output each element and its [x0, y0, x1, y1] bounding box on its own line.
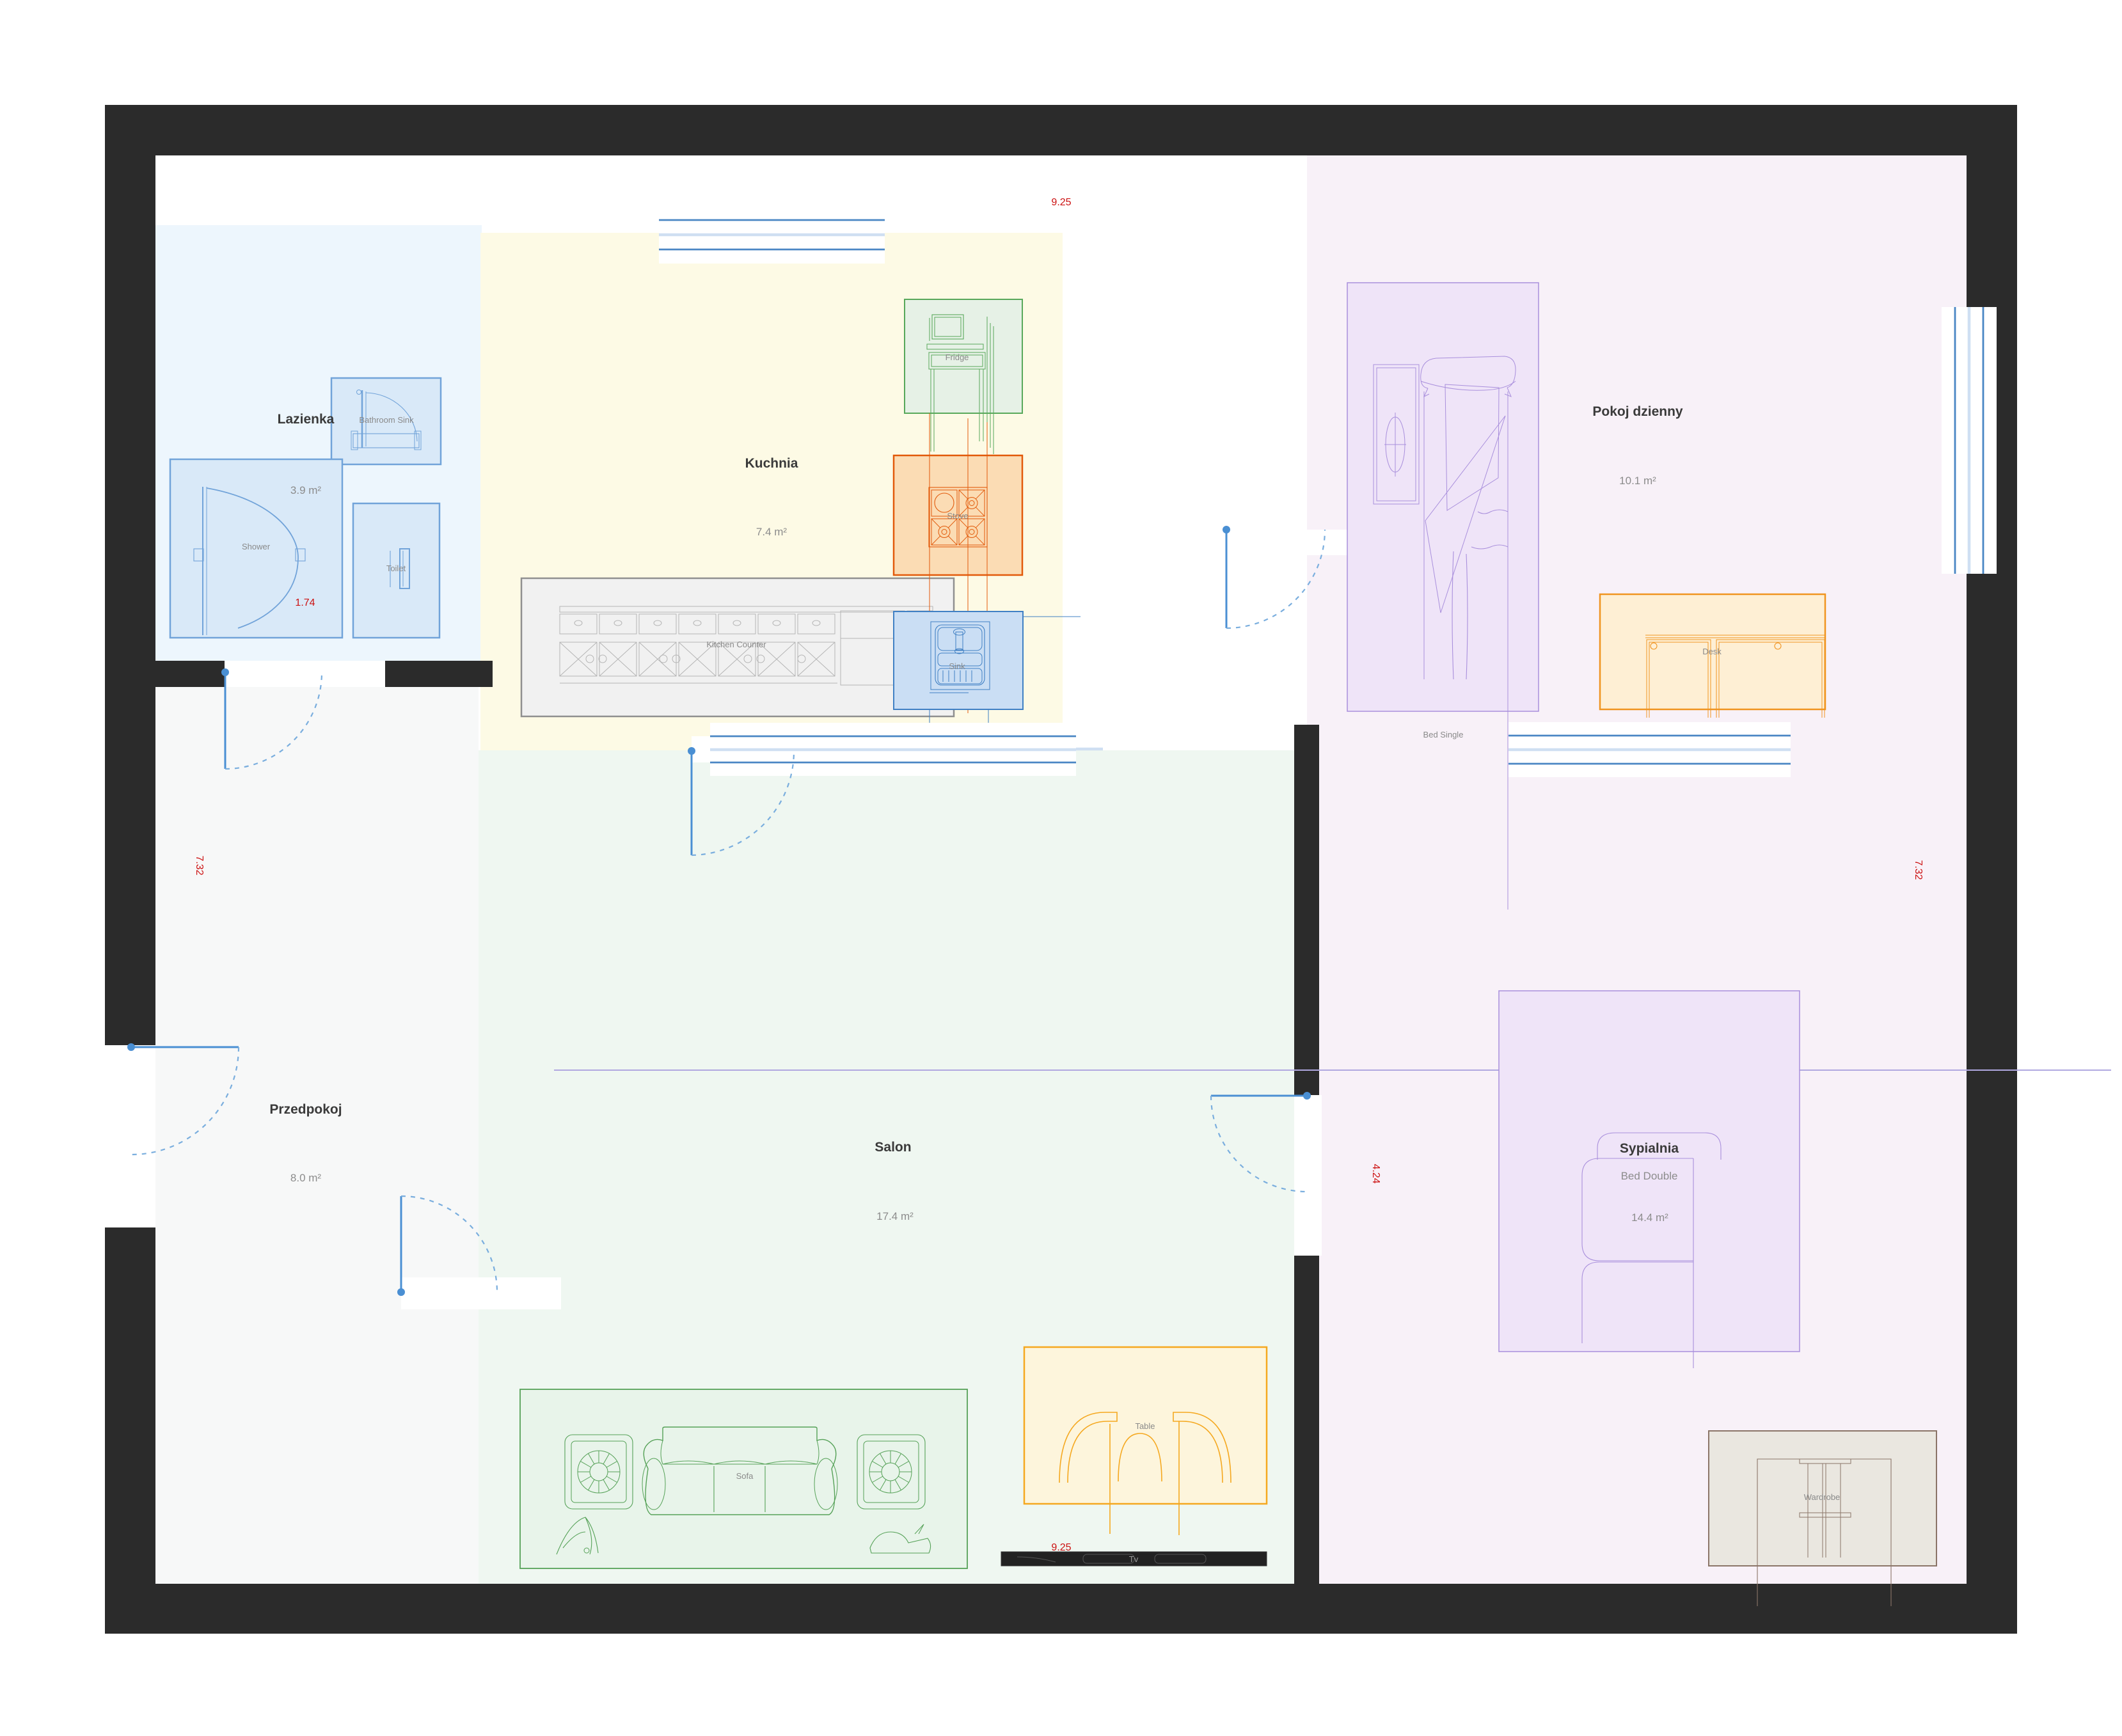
svg-text:7.4 m²: 7.4 m²: [756, 526, 788, 538]
svg-text:4.24: 4.24: [1370, 1164, 1381, 1183]
svg-text:9.25: 9.25: [1051, 197, 1071, 208]
svg-text:14.4 m²: 14.4 m²: [1631, 1211, 1668, 1224]
svg-text:10.1 m²: 10.1 m²: [1619, 475, 1656, 487]
svg-text:Tv: Tv: [1129, 1554, 1139, 1564]
svg-text:Bed Double: Bed Double: [1621, 1170, 1678, 1182]
svg-text:Kuchnia: Kuchnia: [745, 456, 798, 471]
svg-text:7.32: 7.32: [1913, 860, 1924, 880]
svg-text:Lazienka: Lazienka: [278, 412, 335, 427]
svg-text:Wardrobe: Wardrobe: [1804, 1492, 1841, 1502]
svg-text:7.32: 7.32: [194, 855, 205, 875]
svg-text:Sink: Sink: [949, 661, 965, 671]
svg-text:Pokoj dzienny: Pokoj dzienny: [1592, 404, 1683, 419]
svg-text:Desk: Desk: [1702, 647, 1722, 656]
svg-text:Shower: Shower: [242, 542, 271, 551]
svg-text:3.9 m²: 3.9 m²: [290, 484, 322, 496]
svg-text:1.74: 1.74: [295, 597, 315, 608]
svg-text:Salon: Salon: [875, 1140, 911, 1155]
svg-text:Stove: Stove: [947, 511, 968, 521]
svg-text:17.4 m²: 17.4 m²: [876, 1210, 914, 1222]
svg-text:Toilet: Toilet: [386, 564, 406, 573]
svg-text:Fridge: Fridge: [946, 352, 969, 362]
svg-text:Bed Single: Bed Single: [1423, 730, 1464, 739]
svg-text:Sypialnia: Sypialnia: [1620, 1141, 1679, 1156]
svg-text:Kitchen Counter: Kitchen Counter: [706, 640, 766, 649]
svg-text:Bathroom Sink: Bathroom Sink: [359, 415, 414, 425]
svg-text:Przedpokoj: Przedpokoj: [269, 1102, 342, 1117]
svg-text:Table: Table: [1135, 1421, 1155, 1431]
svg-text:Sofa: Sofa: [736, 1471, 754, 1481]
svg-text:9.25: 9.25: [1051, 1542, 1071, 1553]
svg-text:8.0 m²: 8.0 m²: [290, 1172, 322, 1184]
